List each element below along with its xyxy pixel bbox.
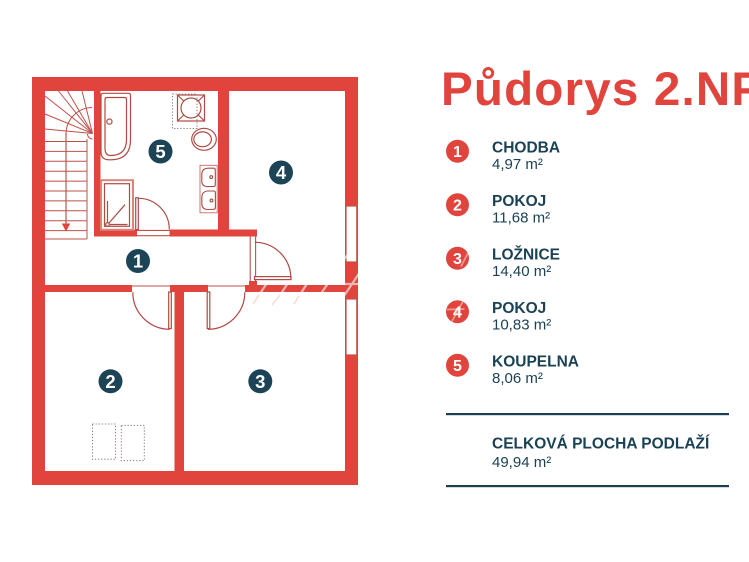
svg-text:14,40 m²: 14,40 m²	[492, 263, 551, 280]
svg-text:Půdorys 2.NP: Půdorys 2.NP	[441, 63, 749, 116]
svg-text:49,94 m²: 49,94 m²	[492, 454, 551, 471]
svg-text:1: 1	[453, 144, 462, 161]
svg-text:LOŽNICE: LOŽNICE	[492, 245, 560, 263]
svg-text:8,06 m²: 8,06 m²	[492, 370, 543, 387]
svg-text:2: 2	[453, 198, 462, 215]
svg-text:POKOJ: POKOJ	[492, 300, 546, 317]
svg-text:5: 5	[155, 141, 165, 162]
svg-text:4: 4	[276, 162, 287, 183]
svg-text:2: 2	[105, 371, 115, 392]
svg-text:11,68 m²: 11,68 m²	[492, 209, 550, 226]
svg-text:4,97 m²: 4,97 m²	[492, 156, 543, 173]
svg-text:CHODBA: CHODBA	[492, 139, 560, 156]
svg-text:KOUPELNA: KOUPELNA	[492, 353, 579, 370]
svg-text:5: 5	[453, 358, 462, 375]
svg-text:1: 1	[133, 251, 143, 272]
svg-text:POKOJ: POKOJ	[492, 193, 546, 210]
svg-text:10,83 m²: 10,83 m²	[492, 316, 551, 333]
svg-text:3: 3	[255, 371, 265, 392]
svg-text:CELKOVÁ PLOCHA PODLAŽÍ: CELKOVÁ PLOCHA PODLAŽÍ	[492, 435, 710, 453]
